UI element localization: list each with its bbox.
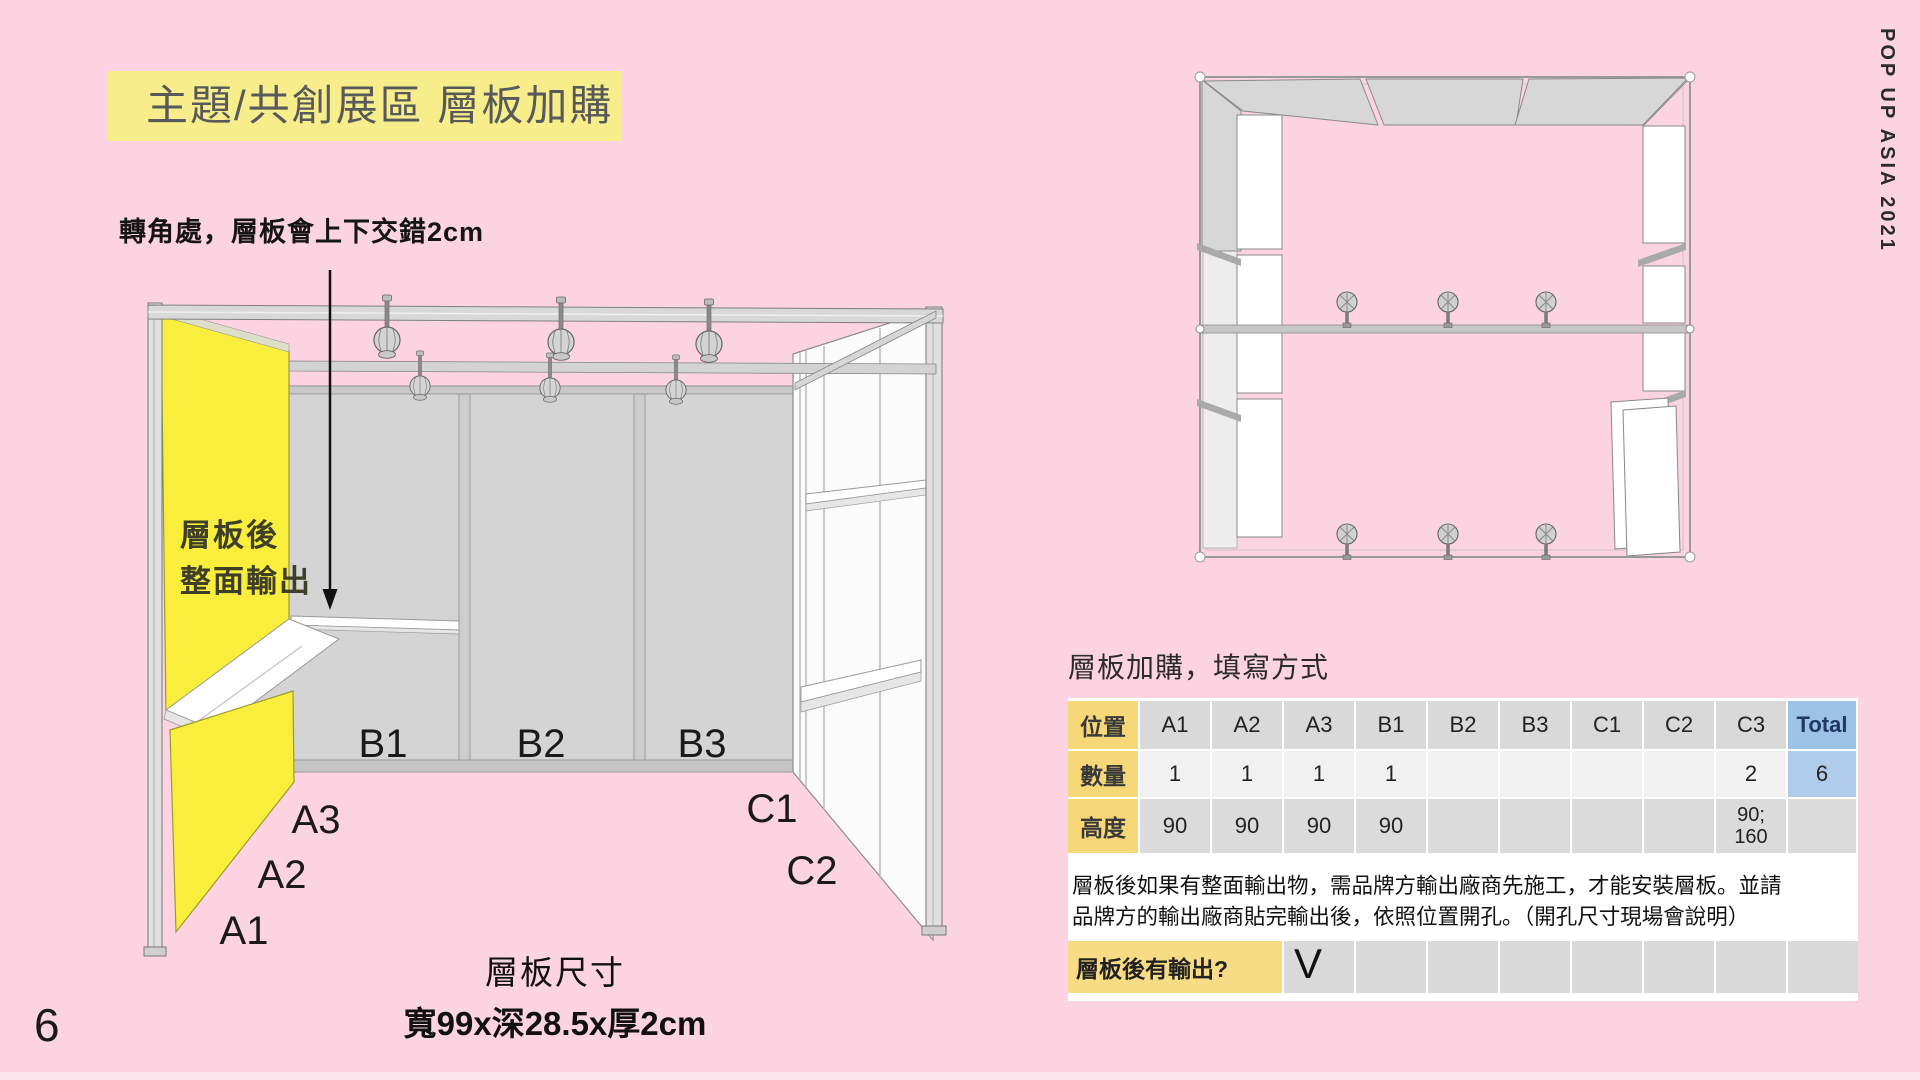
right-wall: [793, 307, 946, 940]
booth-3d-diagram: 層板後 整面輸出 B1 B2 B3 A3 A2 A1 C1 C2: [140, 270, 970, 970]
height-total-cell: [1788, 799, 1856, 853]
col-header-position: 位置: [1068, 701, 1138, 749]
col-header: A2: [1212, 701, 1282, 749]
panel-divider: [634, 394, 645, 760]
label-a1: A1: [220, 909, 269, 953]
qty-cell: 1: [1284, 751, 1354, 797]
label-c1: C1: [746, 787, 797, 831]
height-cell: [1644, 799, 1714, 853]
shelf-table: 位置 A1 A2 A3 B1 B2 B3 C1 C2 C3 Total 數量 1…: [1068, 701, 1858, 853]
qty-cell: [1572, 751, 1642, 797]
bottom-strip: [0, 1072, 1920, 1080]
right-post: [926, 307, 942, 932]
col-header-total: Total: [1788, 701, 1856, 749]
qty-cell: [1428, 751, 1498, 797]
output-question-label: 層板後有輸出?: [1068, 941, 1282, 993]
panel-note-line1: 層板後: [180, 518, 279, 553]
col-header: A1: [1140, 701, 1210, 749]
plan-leaning-panel: [1623, 406, 1680, 556]
output-question-row: 層板後有輸出? V: [1068, 941, 1858, 993]
height-cell: [1572, 799, 1642, 853]
qty-cell: [1500, 751, 1570, 797]
height-cell: 90; 160: [1716, 799, 1786, 853]
qty-cell: 1: [1212, 751, 1282, 797]
output-cell: [1716, 941, 1786, 993]
label-b2: B2: [517, 722, 566, 766]
page-title: 主題/共創展區 層板加購: [108, 71, 622, 141]
col-header: B3: [1500, 701, 1570, 749]
slide: { "page": { "number": "6", "banner": "PO…: [0, 0, 1920, 1080]
output-check-cell: V: [1284, 941, 1354, 993]
col-header: C2: [1644, 701, 1714, 749]
order-form: 位置 A1 A2 A3 B1 B2 B3 C1 C2 C3 Total 數量 1…: [1068, 698, 1858, 1001]
shelf-size-caption: 層板尺寸 寬99x深28.5x厚2cm: [330, 946, 780, 1045]
output-cell: [1500, 941, 1570, 993]
height-cell: [1500, 799, 1570, 853]
right-post-foot: [922, 926, 946, 935]
left-post-foot: [144, 947, 166, 956]
qty-cell: 1: [1140, 751, 1210, 797]
output-cell: [1356, 941, 1426, 993]
form-notes: 層板後如果有整面輸出物，需品牌方輸出廠商先施工，才能安裝層板。並請 品牌方的輸出…: [1072, 871, 1854, 933]
notes-line2: 品牌方的輸出廠商貼完輸出後，依照位置開孔。（開孔尺寸現場會說明）: [1072, 902, 1854, 933]
floor-plan: [1190, 65, 1730, 605]
plan-right-wall: [1611, 78, 1690, 556]
caption-line1: 層板尺寸: [330, 946, 780, 994]
label-a2: A2: [258, 853, 307, 897]
height-cell: 90: [1356, 799, 1426, 853]
col-header: B2: [1428, 701, 1498, 749]
label-c2: C2: [786, 849, 837, 893]
plan-left-wall: [1197, 80, 1282, 548]
height-cell: [1428, 799, 1498, 853]
col-header: C3: [1716, 701, 1786, 749]
qty-cell: 2: [1716, 751, 1786, 797]
back-wall: [250, 386, 793, 772]
qty-cell: [1644, 751, 1714, 797]
output-cell: [1644, 941, 1714, 993]
output-cell: [1788, 941, 1858, 993]
output-cell: [1428, 941, 1498, 993]
col-header: C1: [1572, 701, 1642, 749]
qty-total-cell: 6: [1788, 751, 1856, 797]
label-a3: A3: [292, 798, 341, 842]
page-number: 6: [34, 998, 60, 1052]
height-cell: 90: [1140, 799, 1210, 853]
form-heading: 層板加購，填寫方式: [1068, 646, 1329, 686]
row-header-qty: 數量: [1068, 751, 1138, 797]
notes-line1: 層板後如果有整面輸出物，需品牌方輸出廠商先施工，才能安裝層板。並請: [1072, 871, 1854, 902]
panel-divider: [459, 394, 470, 760]
caption-line2: 寬99x深28.5x厚2cm: [330, 997, 780, 1045]
row-header-height: 高度: [1068, 799, 1138, 853]
event-banner: POP UP ASIA 2021: [1875, 28, 1898, 253]
col-header: B1: [1356, 701, 1426, 749]
height-cell: 90: [1284, 799, 1354, 853]
output-cell: [1572, 941, 1642, 993]
height-cell: 90: [1212, 799, 1282, 853]
label-b3: B3: [678, 722, 727, 766]
corner-shelf-annotation: 轉角處，層板會上下交錯2cm: [119, 210, 484, 249]
col-header: A3: [1284, 701, 1354, 749]
panel-note-line2: 整面輸出: [180, 564, 312, 599]
qty-cell: 1: [1356, 751, 1426, 797]
label-b1: B1: [359, 722, 408, 766]
